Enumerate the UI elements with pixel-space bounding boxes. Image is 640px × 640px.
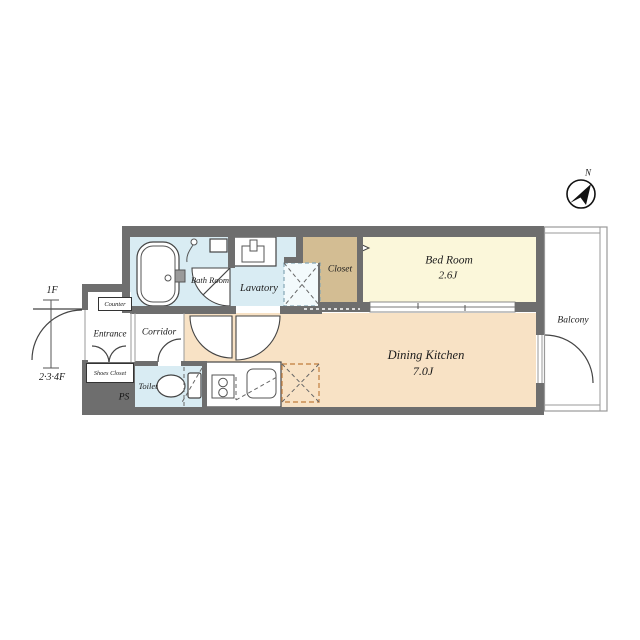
balcony-door	[545, 335, 593, 383]
wall-toilet-top-left	[135, 361, 158, 366]
wall-partition-left	[318, 302, 370, 312]
floor-plan-drawing	[0, 0, 640, 640]
compass-north-label: N	[585, 169, 591, 178]
wall-closet-right	[357, 237, 363, 302]
sliding-door	[370, 302, 515, 312]
wall-top	[122, 226, 544, 237]
entrance-label: Entrance	[94, 330, 127, 339]
corridor-label: Corridor	[142, 328, 176, 338]
washbasin	[233, 237, 276, 266]
shoes-closet-label: Shoes Closet	[94, 370, 126, 377]
balcony-label: Balcony	[557, 316, 588, 326]
wall-right-upper	[536, 226, 544, 335]
washing-machine-pan	[284, 263, 320, 306]
compass-icon	[567, 180, 595, 208]
wall-bath-bottom	[130, 306, 236, 314]
wall-entrance-top	[82, 284, 130, 292]
bath-shelf	[210, 239, 227, 252]
wall-entrance-left-upper	[82, 292, 88, 310]
bedroom-label: Bed Room	[425, 255, 473, 267]
wall-partition-right	[515, 302, 537, 312]
dining-kitchen-label: Dining Kitchen	[388, 349, 465, 362]
pipe-space-label: PS	[119, 393, 130, 403]
wall-lavatory-bottom	[280, 306, 322, 314]
closet-label: Closet	[328, 265, 352, 275]
bedroom-size: 2.6J	[439, 271, 458, 282]
floor-indicator-bottom: 2·3·4F	[39, 373, 65, 383]
floor-plan-canvas: Bath Room Lavatory Closet Bed Room 2.6J …	[0, 0, 640, 640]
floor-indicator-line	[43, 300, 59, 368]
dining-kitchen-size: 7.0J	[413, 365, 433, 377]
balcony-window-frame	[538, 335, 542, 383]
wall-pan-closet-line	[318, 263, 320, 306]
wall-lavatory-closet-h	[284, 257, 303, 263]
wall-bottom	[82, 407, 544, 415]
toilet-label: Toilet	[138, 382, 157, 391]
wall-bath-lavatory	[228, 237, 235, 268]
wall-toilet-top-right	[181, 361, 202, 366]
bathtub	[137, 242, 185, 306]
kitchen-counter	[206, 362, 281, 407]
counter-label: Counter	[104, 301, 125, 308]
wall-toilet-right	[202, 361, 207, 407]
lavatory-label: Lavatory	[240, 284, 278, 295]
floor-indicator-top: 1F	[46, 286, 57, 296]
bath-faucet	[175, 270, 185, 282]
entrance-door	[32, 310, 82, 360]
shoes-closet-box: Shoes Closet	[86, 363, 134, 383]
counter-box: Counter	[98, 297, 132, 311]
bath-room-label: Bath Room	[191, 276, 229, 285]
